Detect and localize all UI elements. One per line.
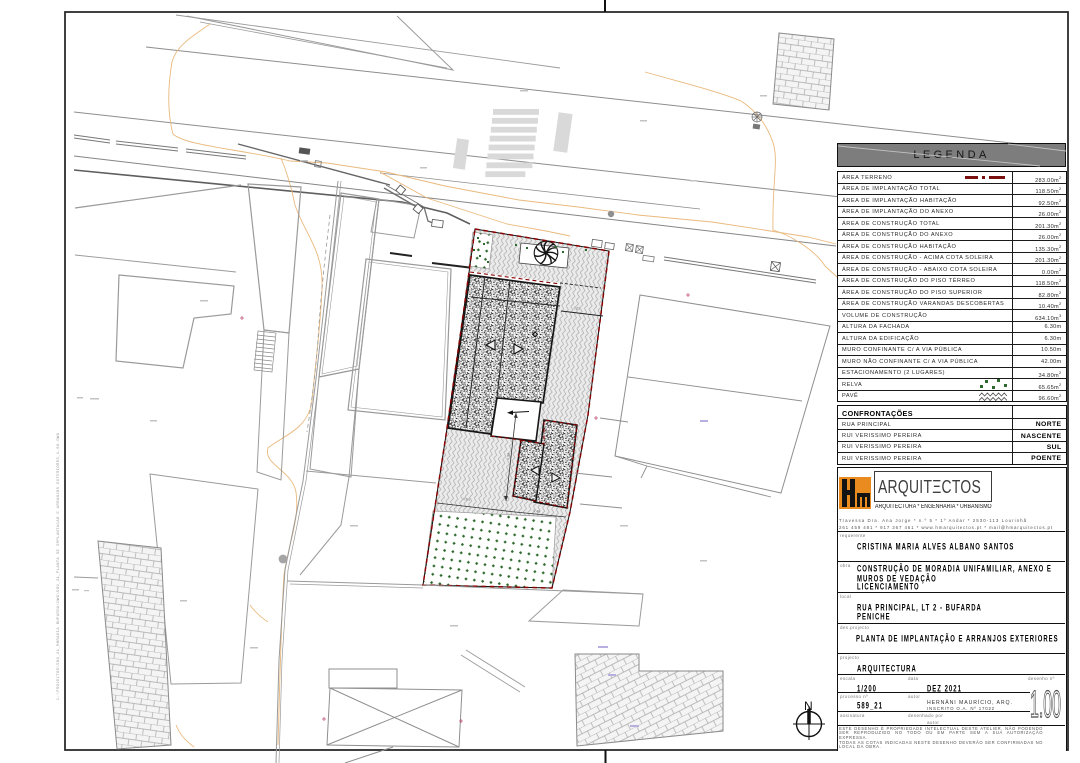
svg-text:N: N bbox=[804, 699, 813, 713]
svg-text:5.46: 5.46 bbox=[533, 509, 540, 514]
svg-text:8.50: 8.50 bbox=[463, 497, 470, 502]
svg-text:7.98: 7.98 bbox=[506, 453, 511, 460]
svg-text:C:\PROJECTOS\589_21_MORADIA BU: C:\PROJECTOS\589_21_MORADIA BUFARDA\DWG\… bbox=[56, 432, 61, 700]
svg-text:1.25: 1.25 bbox=[573, 306, 580, 311]
